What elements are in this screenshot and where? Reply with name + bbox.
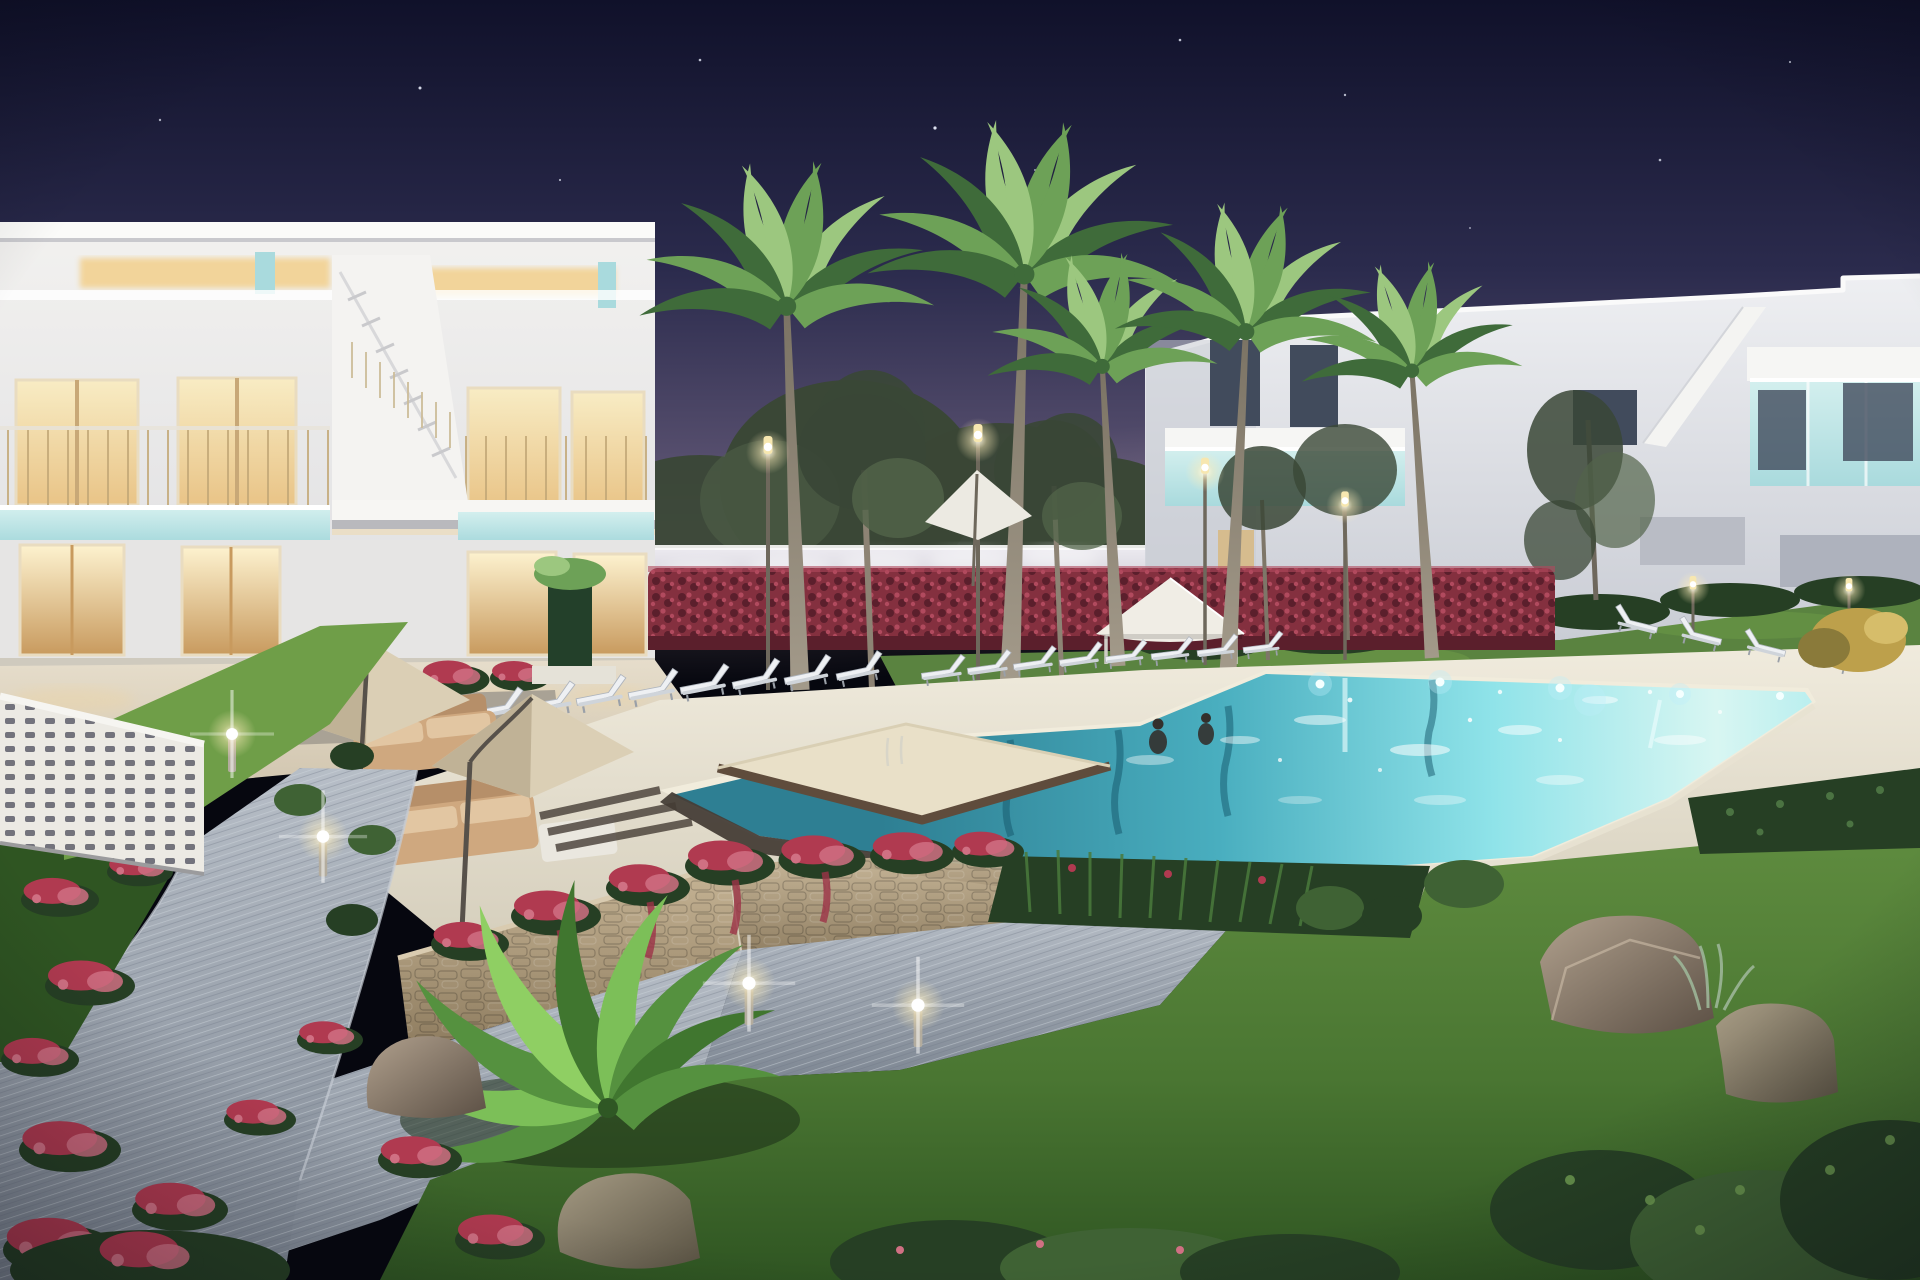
- render-canvas: Night-time render of a modern white resi…: [0, 0, 1920, 1280]
- architectural-render: Night-time render of a modern white resi…: [0, 0, 1920, 1280]
- vignette-overlay: [0, 0, 1920, 1280]
